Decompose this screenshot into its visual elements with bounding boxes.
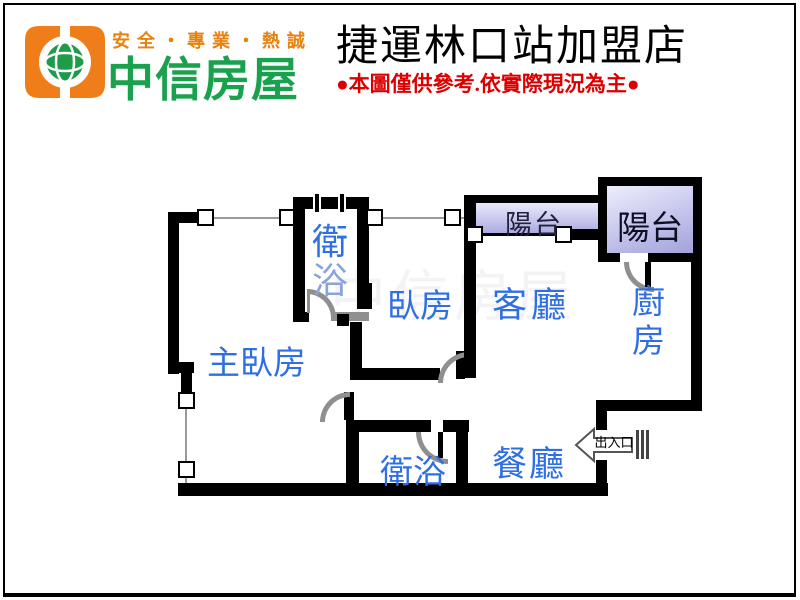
window-symbol — [366, 209, 383, 226]
wall-column — [337, 314, 349, 326]
window-symbol — [178, 392, 195, 409]
window-symbol — [466, 226, 483, 243]
disclaimer-text: ●本圖僅供參考.依實際現況為主● — [336, 68, 640, 98]
wall-hall — [350, 322, 362, 372]
wall-bedroom-bottom — [350, 368, 440, 380]
store-name: 捷運林口站加盟店 — [336, 12, 688, 73]
wall-living-left — [464, 196, 476, 378]
room-label-dining-room: 餐廳 — [492, 436, 566, 487]
company-logo — [22, 24, 108, 100]
globe-icon — [45, 42, 85, 82]
room-label-bathroom-top: 衛 浴 — [312, 223, 348, 301]
room-label-char: 房 — [632, 323, 665, 362]
entrance-door-bar — [636, 430, 639, 459]
wall-bath1-left — [293, 197, 305, 322]
wall-column — [357, 283, 372, 309]
wall — [572, 229, 598, 240]
wall — [181, 362, 192, 395]
window-symbol — [178, 461, 195, 478]
window-symbol — [338, 192, 346, 214]
window-symbol — [444, 209, 461, 226]
wall-kitchen-bottom — [598, 400, 702, 411]
wall-balcony-top — [464, 195, 598, 203]
room-label-char: 浴 — [312, 262, 348, 301]
room-label-balcony-front: 陽台 — [505, 203, 563, 242]
room-label-bedroom: 臥房 — [387, 279, 453, 327]
room-label-living-room: 客廳 — [492, 277, 570, 328]
window-symbol — [197, 209, 214, 226]
entrance-door-bar — [646, 430, 649, 459]
entrance-label: 出入口 — [592, 432, 636, 450]
room-label-balcony-kitchen: 陽台 — [617, 201, 683, 249]
wall-bath2-right — [456, 420, 468, 496]
floorplan-page: 安全・專業・熱誠 中信房屋 捷運林口站加盟店 ●本圖僅供參考.依實際現況為主● … — [0, 0, 800, 600]
room-label-kitchen: 廚 房 — [632, 284, 665, 362]
wall-dining-right — [596, 400, 607, 430]
room-label-master-bedroom: 主臥房 — [207, 336, 306, 384]
window-symbol — [313, 192, 321, 214]
wall-kitchen-right — [691, 258, 702, 410]
wall-bath2-top — [346, 420, 431, 432]
wall-dining-right — [596, 460, 607, 496]
room-label-char: 衛 — [312, 223, 348, 262]
door-opening — [620, 253, 648, 262]
entrance-door-bar — [641, 430, 644, 459]
wall — [168, 212, 179, 374]
brand-name: 中信房屋 — [107, 41, 299, 110]
room-label-bathroom-bottom: 衛浴 — [380, 445, 446, 493]
room-label-char: 廚 — [632, 284, 665, 323]
door-leaf — [307, 289, 310, 313]
